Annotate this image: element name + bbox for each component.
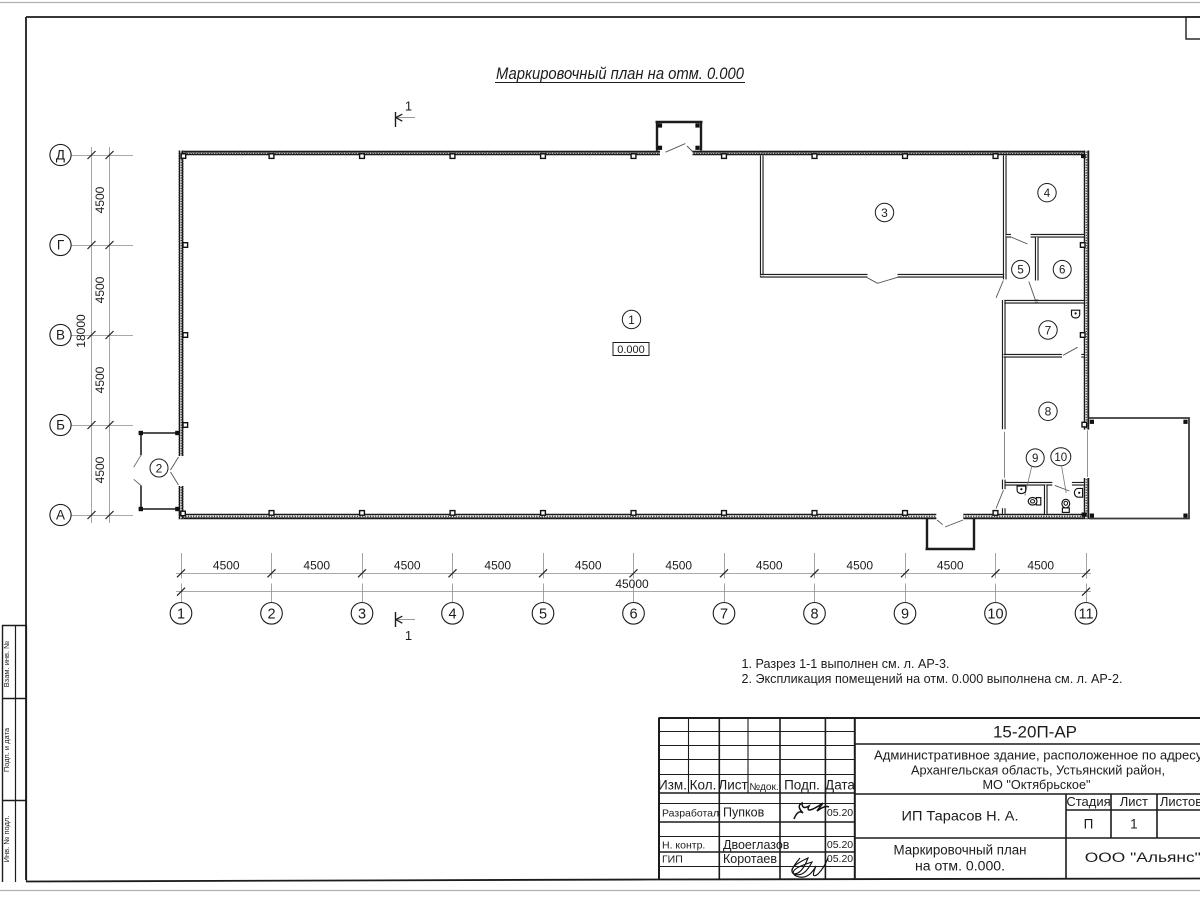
svg-text:Маркировочный план на отм. 0.0: Маркировочный план на отм. 0.000 [496,65,745,83]
svg-text:4500: 4500 [93,456,107,483]
svg-text:Подп. и дата: Подп. и дата [2,727,11,772]
svg-text:Листов: Листов [1160,794,1200,809]
svg-text:1: 1 [628,313,635,327]
svg-text:4: 4 [1044,188,1051,200]
svg-text:5: 5 [539,606,547,622]
svg-text:1: 1 [1130,817,1138,832]
svg-text:15-20П-АР: 15-20П-АР [993,723,1077,742]
svg-text:8: 8 [1045,405,1052,419]
svg-text:6: 6 [629,606,637,622]
svg-text:5: 5 [1017,265,1023,277]
svg-text:№док.: №док. [749,782,778,793]
svg-text:7: 7 [720,606,728,622]
svg-text:0.000: 0.000 [617,344,645,356]
svg-text:Б: Б [56,418,65,433]
svg-text:В: В [56,328,65,343]
svg-text:Изм.: Изм. [658,778,687,793]
svg-text:4500: 4500 [756,559,783,573]
svg-text:П: П [1084,817,1094,832]
svg-text:4500: 4500 [846,559,873,573]
svg-text:Подп.: Подп. [784,778,820,793]
svg-text:на отм. 0.000.: на отм. 0.000. [915,859,1005,874]
svg-text:А: А [56,508,65,523]
svg-text:2. Экспликация помещений на от: 2. Экспликация помещений на отм. 0.000 в… [742,671,1123,686]
svg-text:Лист: Лист [718,778,747,793]
svg-text:9: 9 [1032,453,1038,465]
svg-text:4500: 4500 [93,276,107,303]
svg-text:4500: 4500 [213,559,240,573]
svg-text:4500: 4500 [1027,559,1054,573]
svg-text:2: 2 [267,606,275,622]
svg-text:Н. контр.: Н. контр. [662,840,705,852]
svg-text:Пупков: Пупков [723,806,765,820]
svg-text:9: 9 [901,606,909,622]
svg-text:18000: 18000 [74,314,88,348]
svg-text:4500: 4500 [394,559,421,573]
svg-text:4500: 4500 [303,559,330,573]
svg-text:Двоеглазов: Двоеглазов [723,838,790,852]
svg-text:Кол.: Кол. [690,778,717,793]
svg-text:Архангельская область, Устьянс: Архангельская область, Устьянский район, [911,763,1165,778]
svg-text:3: 3 [881,206,888,220]
svg-text:Г: Г [57,238,65,253]
svg-text:ИП Тарасов Н. А.: ИП Тарасов Н. А. [902,809,1019,824]
svg-text:4500: 4500 [93,366,107,393]
svg-text:Д: Д [56,148,65,163]
svg-text:Коротаев: Коротаев [723,852,777,866]
svg-text:10: 10 [1054,452,1067,464]
svg-text:МО "Октябрьское": МО "Октябрьское" [983,777,1091,792]
svg-text:2: 2 [156,461,163,475]
svg-text:05.20: 05.20 [827,807,853,819]
svg-text:4500: 4500 [575,559,602,573]
svg-text:45000: 45000 [615,577,649,591]
svg-text:Взам. инв. №: Взам. инв. № [2,641,11,687]
svg-text:3: 3 [358,606,366,622]
svg-text:4500: 4500 [93,186,107,213]
svg-text:7: 7 [1045,323,1052,337]
svg-text:4: 4 [448,606,456,622]
svg-text:1. Разрез 1-1 выполнен см. л.: 1. Разрез 1-1 выполнен см. л. АР-3. [742,656,950,671]
svg-text:4500: 4500 [937,559,964,573]
svg-text:05.20: 05.20 [827,839,853,851]
svg-text:Маркировочный план: Маркировочный план [894,843,1027,858]
svg-text:1: 1 [405,99,412,114]
svg-text:11: 11 [1078,606,1093,622]
svg-text:4500: 4500 [484,559,511,573]
svg-text:Административное здание, распо: Административное здание, расположенное п… [874,748,1200,763]
svg-text:1: 1 [177,606,185,622]
svg-text:6: 6 [1059,265,1065,277]
svg-text:8: 8 [810,606,818,622]
svg-text:ООО "Альянс": ООО "Альянс" [1085,850,1200,865]
svg-text:Лист: Лист [1120,794,1148,809]
svg-text:1: 1 [405,628,412,643]
svg-text:05.20: 05.20 [827,853,853,865]
svg-text:Дата: Дата [825,778,855,793]
svg-text:4500: 4500 [665,559,692,573]
svg-text:Разработал: Разработал [662,808,719,820]
svg-text:Инв. № подл.: Инв. № подл. [2,816,11,863]
svg-text:10: 10 [987,606,1003,622]
svg-text:Стадия: Стадия [1066,794,1110,809]
svg-text:ГИП: ГИП [662,854,683,866]
